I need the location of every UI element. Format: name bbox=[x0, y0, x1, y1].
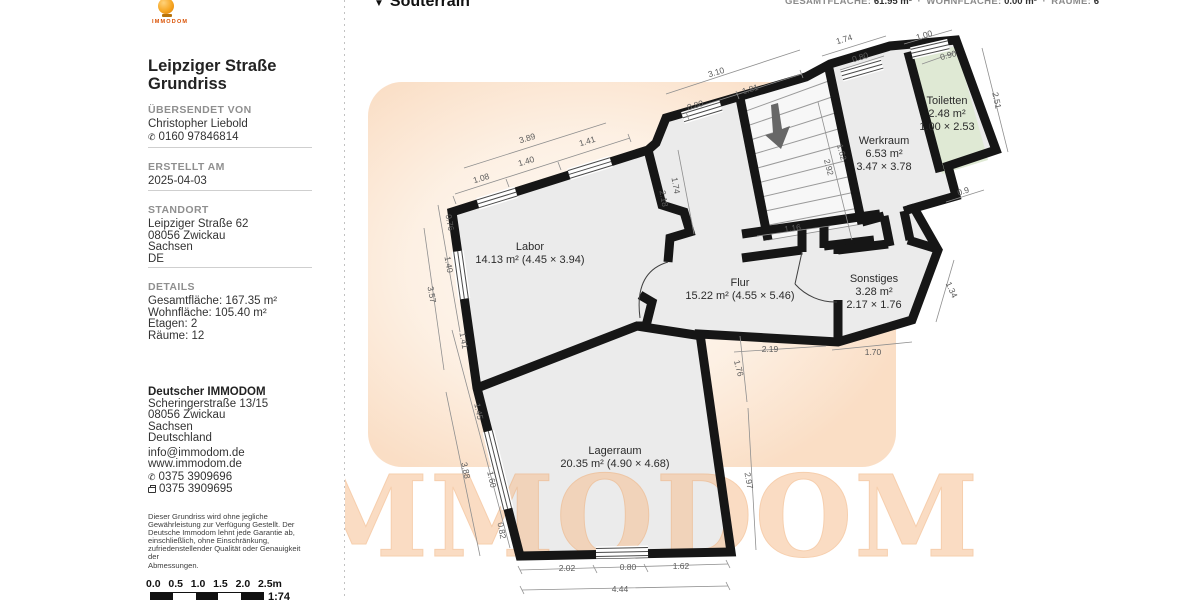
dimension-label: 2.19 bbox=[762, 344, 779, 354]
title-line1: Leipziger Straße bbox=[148, 57, 276, 75]
scale-label: 1.5 bbox=[213, 578, 235, 590]
dimension-label: 0.9 bbox=[956, 185, 970, 198]
floor-plan-canvas: IMMODOM bbox=[345, 0, 1200, 600]
phone-icon: ✆ bbox=[148, 473, 156, 482]
sent-by-phone: 0160 97846814 bbox=[159, 132, 239, 144]
document-title: Leipziger Straße Grundriss bbox=[148, 57, 276, 93]
sent-by-header: ÜBERSENDET VON bbox=[148, 104, 252, 116]
company-city: 08056 Zwickau bbox=[148, 410, 268, 422]
scale-label: 2.5m bbox=[258, 578, 280, 590]
created-at-section: ERSTELLT AM 2025-04-03 bbox=[148, 161, 225, 188]
location-section: STANDORT Leipziger Straße 62 08056 Zwick… bbox=[148, 204, 248, 265]
scale-label: 0.5 bbox=[168, 578, 190, 590]
floor-plan-svg: IMMODOM bbox=[345, 0, 1200, 600]
scale-segment bbox=[151, 593, 173, 600]
dimension-label: 3.10 bbox=[707, 65, 726, 79]
scale-segment bbox=[196, 593, 218, 600]
logo-wordmark: IMMODOM bbox=[152, 19, 182, 25]
details-total-area: Gesamtfläche: 167.35 m² bbox=[148, 296, 277, 308]
divider bbox=[148, 190, 312, 191]
scale-label: 1.0 bbox=[191, 578, 213, 590]
logo-base-icon bbox=[162, 14, 172, 17]
company-phone: 0375 3909696 bbox=[159, 472, 233, 484]
company-fax: 0375 3909695 bbox=[159, 484, 233, 496]
dimension-label: 1.70 bbox=[865, 347, 882, 357]
dimension-label: 0.80 bbox=[620, 562, 637, 572]
location-state: Sachsen bbox=[148, 242, 248, 254]
dimension-label: 1.62 bbox=[673, 561, 690, 571]
company-website[interactable]: www.immodom.de bbox=[148, 459, 268, 471]
sent-by-name: Christopher Liebold bbox=[148, 119, 252, 131]
created-at-header: ERSTELLT AM bbox=[148, 161, 225, 173]
dimension-label: 1.74 bbox=[835, 32, 854, 46]
divider bbox=[148, 267, 312, 268]
immodom-logo: IMMODOM bbox=[152, 0, 182, 25]
scale-label: 0.0 bbox=[146, 578, 168, 590]
scale-segment bbox=[218, 593, 240, 600]
details-floors: Etagen: 2 bbox=[148, 319, 277, 331]
scale-segment bbox=[173, 593, 195, 600]
company-name: Deutscher IMMODOM bbox=[148, 387, 268, 399]
details-rooms: Räume: 12 bbox=[148, 331, 277, 343]
company-country: Deutschland bbox=[148, 433, 268, 445]
sidebar: IMMODOM Leipziger Straße Grundriss ÜBERS… bbox=[0, 0, 345, 600]
scale-segment bbox=[241, 593, 263, 600]
company-section: Deutscher IMMODOM Scheringerstraße 13/15… bbox=[148, 387, 268, 496]
dimension-label: 1.34 bbox=[944, 280, 960, 299]
disclaimer-text: Dieser Grundriss wird ohne jegliche Gewä… bbox=[148, 513, 310, 570]
fax-icon bbox=[148, 487, 156, 493]
logo-ball-icon bbox=[158, 0, 174, 14]
scale-ratio: 1:74 bbox=[268, 591, 290, 600]
location-street: Leipziger Straße 62 bbox=[148, 219, 248, 231]
location-country: DE bbox=[148, 254, 248, 266]
scale-label: 2.0 bbox=[236, 578, 258, 590]
dimension-label: 2.51 bbox=[990, 91, 1003, 110]
title-line2: Grundriss bbox=[148, 75, 276, 93]
location-header: STANDORT bbox=[148, 204, 248, 216]
details-header: DETAILS bbox=[148, 281, 277, 293]
created-at-date: 2025-04-03 bbox=[148, 176, 225, 188]
window bbox=[596, 546, 648, 559]
scale-bar bbox=[150, 592, 264, 600]
phone-icon: ✆ bbox=[148, 133, 156, 142]
watermark-text: IMMODOM bbox=[345, 452, 980, 583]
floorplan-page: IMMODOM Leipziger Straße Grundriss ÜBERS… bbox=[0, 0, 1200, 600]
divider bbox=[148, 147, 312, 148]
sent-by-section: ÜBERSENDET VON Christopher Liebold ✆ 016… bbox=[148, 104, 252, 143]
dimension-label: 2.02 bbox=[559, 563, 576, 573]
details-section: DETAILS Gesamtfläche: 167.35 m² Wohnfläc… bbox=[148, 281, 277, 342]
scale-bar-labels: 0.00.51.01.52.02.5m bbox=[146, 578, 280, 590]
dimension-label: 4.44 bbox=[612, 584, 629, 594]
